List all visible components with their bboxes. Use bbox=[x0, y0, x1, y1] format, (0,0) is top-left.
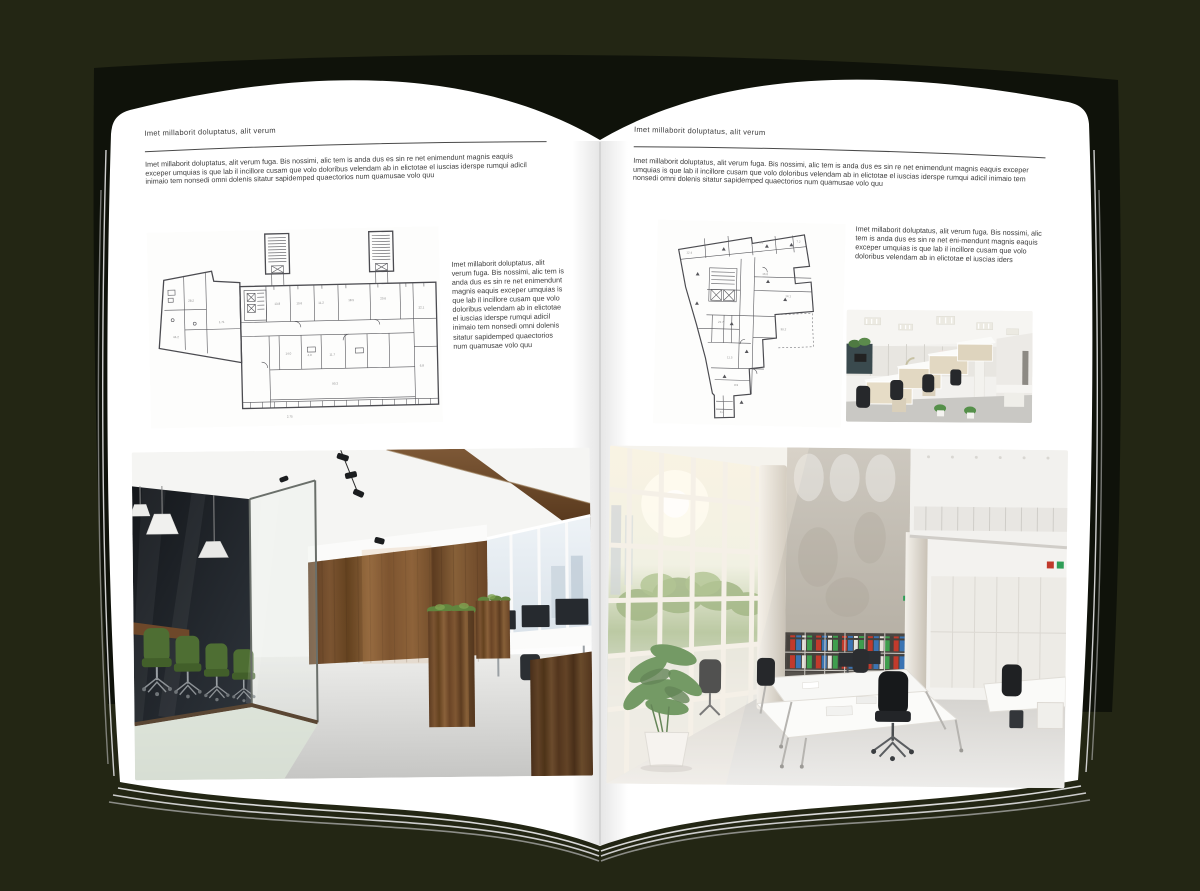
svg-text:3.4: 3.4 bbox=[720, 410, 725, 414]
svg-text:20.6: 20.6 bbox=[380, 296, 386, 300]
side-paragraph: Imet millaborit doluptatus, alit verum f… bbox=[451, 257, 567, 350]
office-photo-large-right bbox=[606, 446, 1068, 789]
svg-text:1.71: 1.71 bbox=[219, 320, 225, 324]
backdrop: Imet millaborit doluptatus, alit verum I… bbox=[0, 0, 1200, 891]
svg-text:16.8: 16.8 bbox=[762, 272, 768, 276]
svg-text:18.5: 18.5 bbox=[348, 298, 354, 302]
svg-text:11.3: 11.3 bbox=[727, 355, 733, 359]
svg-text:22.7: 22.7 bbox=[718, 320, 724, 324]
header-rule bbox=[145, 138, 547, 153]
page-header: Imet millaborit doluptatus, alit verum bbox=[634, 125, 766, 137]
svg-text:9.6: 9.6 bbox=[759, 241, 764, 245]
svg-text:13.8: 13.8 bbox=[274, 302, 280, 306]
svg-text:4.9: 4.9 bbox=[307, 353, 312, 357]
svg-text:14.1: 14.1 bbox=[785, 294, 791, 298]
svg-text:28.2: 28.2 bbox=[188, 299, 194, 303]
svg-text:44.2: 44.2 bbox=[173, 335, 179, 339]
svg-text:7.2: 7.2 bbox=[796, 240, 801, 244]
svg-text:6.8: 6.8 bbox=[420, 363, 425, 367]
right-page: Imet millaborit doluptatus, alit verum I… bbox=[602, 106, 1085, 817]
intro-paragraph: Imet millaborit doluptatus, alit verum f… bbox=[145, 152, 531, 187]
page-header: Imet millaborit doluptatus, alit verum bbox=[144, 126, 276, 138]
side-paragraph: Imet millaborit doluptatus, alit verum f… bbox=[855, 224, 1044, 265]
floor-plan-right: 12.49.67.2 16.814.122.7 11.38.93.4 30.2 bbox=[653, 217, 846, 430]
office-photo-small bbox=[846, 310, 1033, 423]
intro-paragraph: Imet millaborit doluptatus, alit verum f… bbox=[633, 157, 1032, 193]
floor-plan-left: 13.810.611.2 18.520.632.1 14.04.911.7 28… bbox=[147, 226, 443, 429]
svg-text:11.2: 11.2 bbox=[318, 301, 324, 305]
svg-text:11.7: 11.7 bbox=[329, 352, 335, 356]
svg-text:10.6: 10.6 bbox=[296, 301, 302, 305]
svg-text:30.2: 30.2 bbox=[781, 327, 787, 331]
svg-text:8.9: 8.9 bbox=[734, 383, 739, 387]
left-page: Imet millaborit doluptatus, alit verum I… bbox=[118, 111, 598, 821]
svg-text:2.75: 2.75 bbox=[287, 414, 293, 418]
svg-text:14.0: 14.0 bbox=[285, 351, 291, 355]
svg-text:12.4: 12.4 bbox=[686, 251, 692, 255]
svg-text:90.3: 90.3 bbox=[332, 381, 338, 385]
svg-text:32.1: 32.1 bbox=[418, 305, 424, 309]
office-photo-large-left bbox=[132, 448, 593, 781]
